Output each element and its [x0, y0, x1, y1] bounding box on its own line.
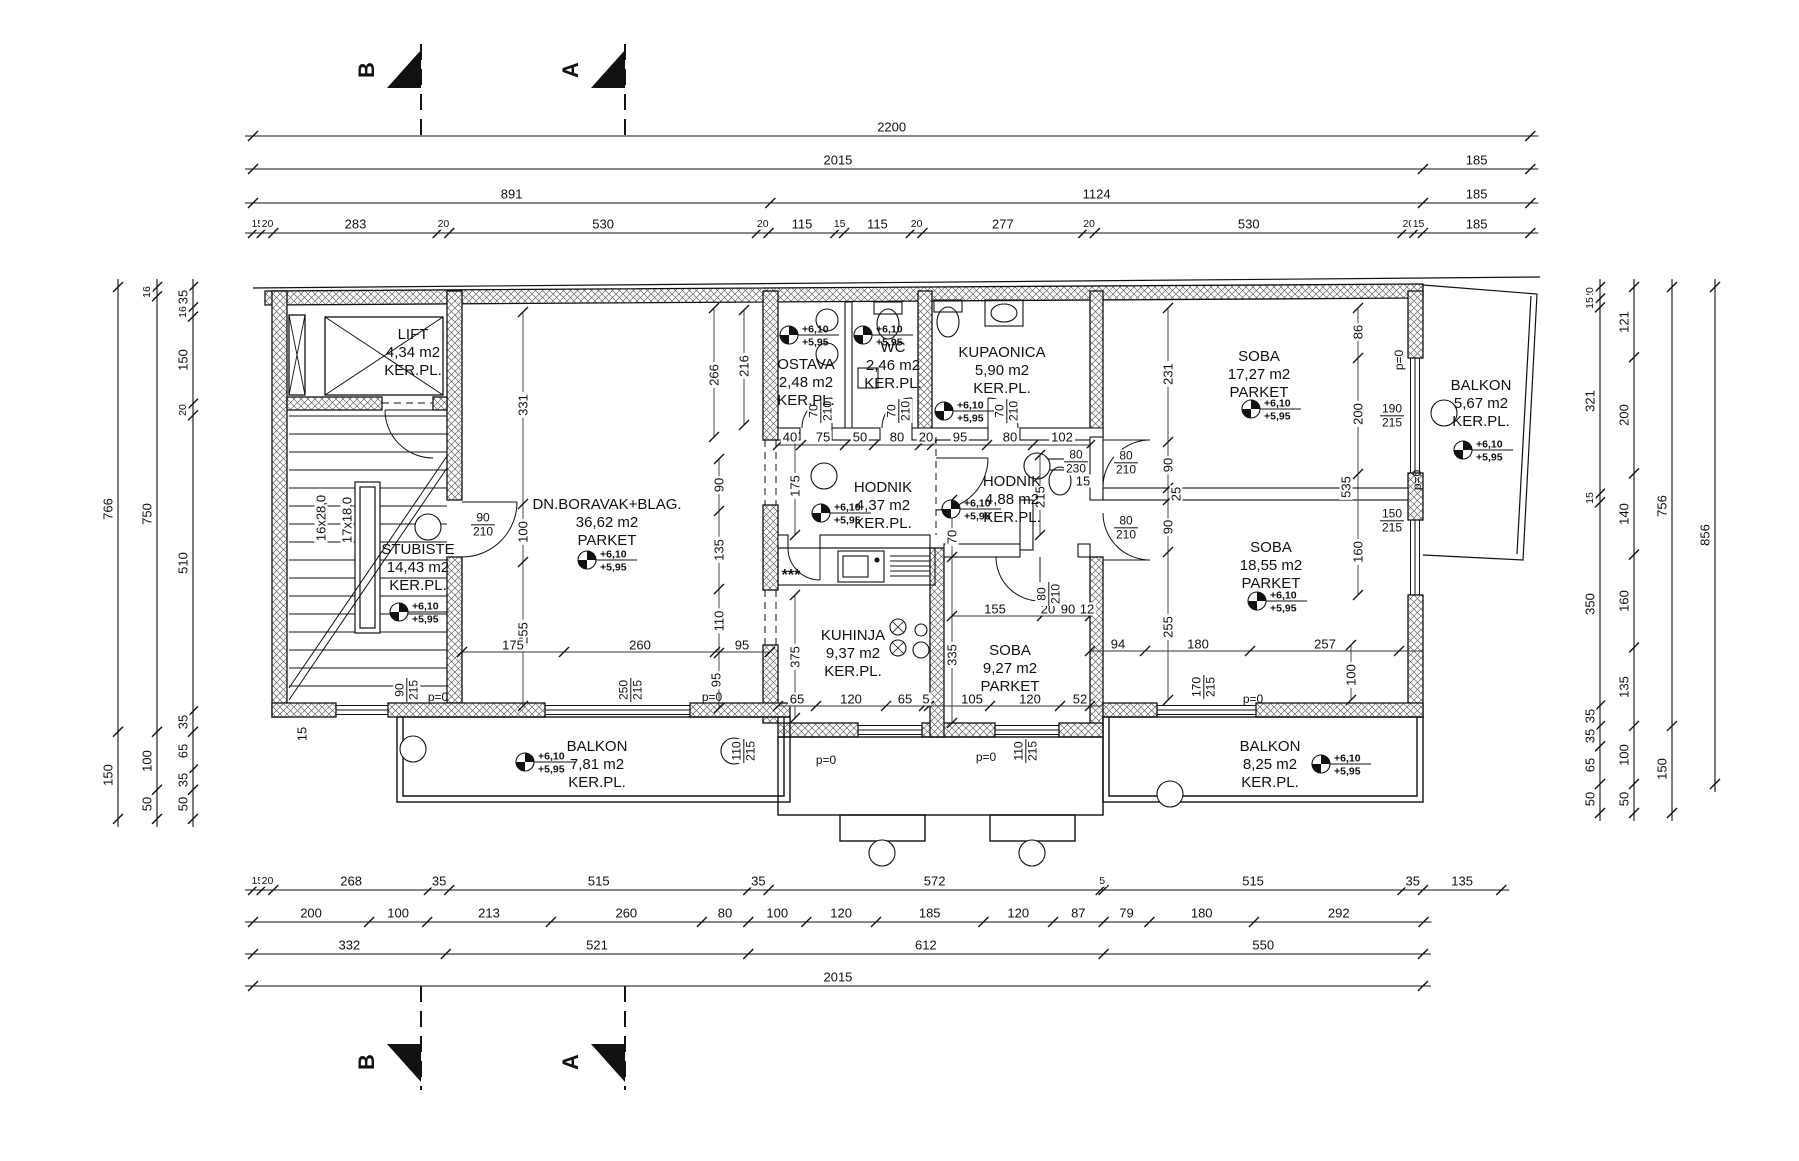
section-flag-icon [387, 50, 421, 88]
roof-outline [253, 277, 1540, 560]
floor-plan-page: B A B A 22002015185891112418515202832053… [0, 0, 1799, 1161]
kitchen-counter [778, 548, 935, 585]
section-label-a-top: A [558, 62, 583, 78]
section-markers: B A B A [354, 44, 625, 1090]
floor-plan-drawing: B A B A [0, 0, 1799, 1161]
section-flag-icon [387, 1044, 421, 1082]
balconies [397, 717, 1423, 841]
section-flag-icon [591, 1044, 625, 1082]
stove-burner-icon [913, 642, 929, 658]
section-label-a-bottom: A [558, 1054, 583, 1070]
section-label-b-bottom: B [354, 1054, 379, 1070]
section-flag-icon [591, 50, 625, 88]
sink-icon [858, 368, 878, 388]
toilet-icon [1049, 467, 1071, 495]
lift-shaft [289, 315, 443, 395]
section-label-b-top: B [354, 62, 379, 78]
stove-burner-icon [915, 624, 927, 636]
